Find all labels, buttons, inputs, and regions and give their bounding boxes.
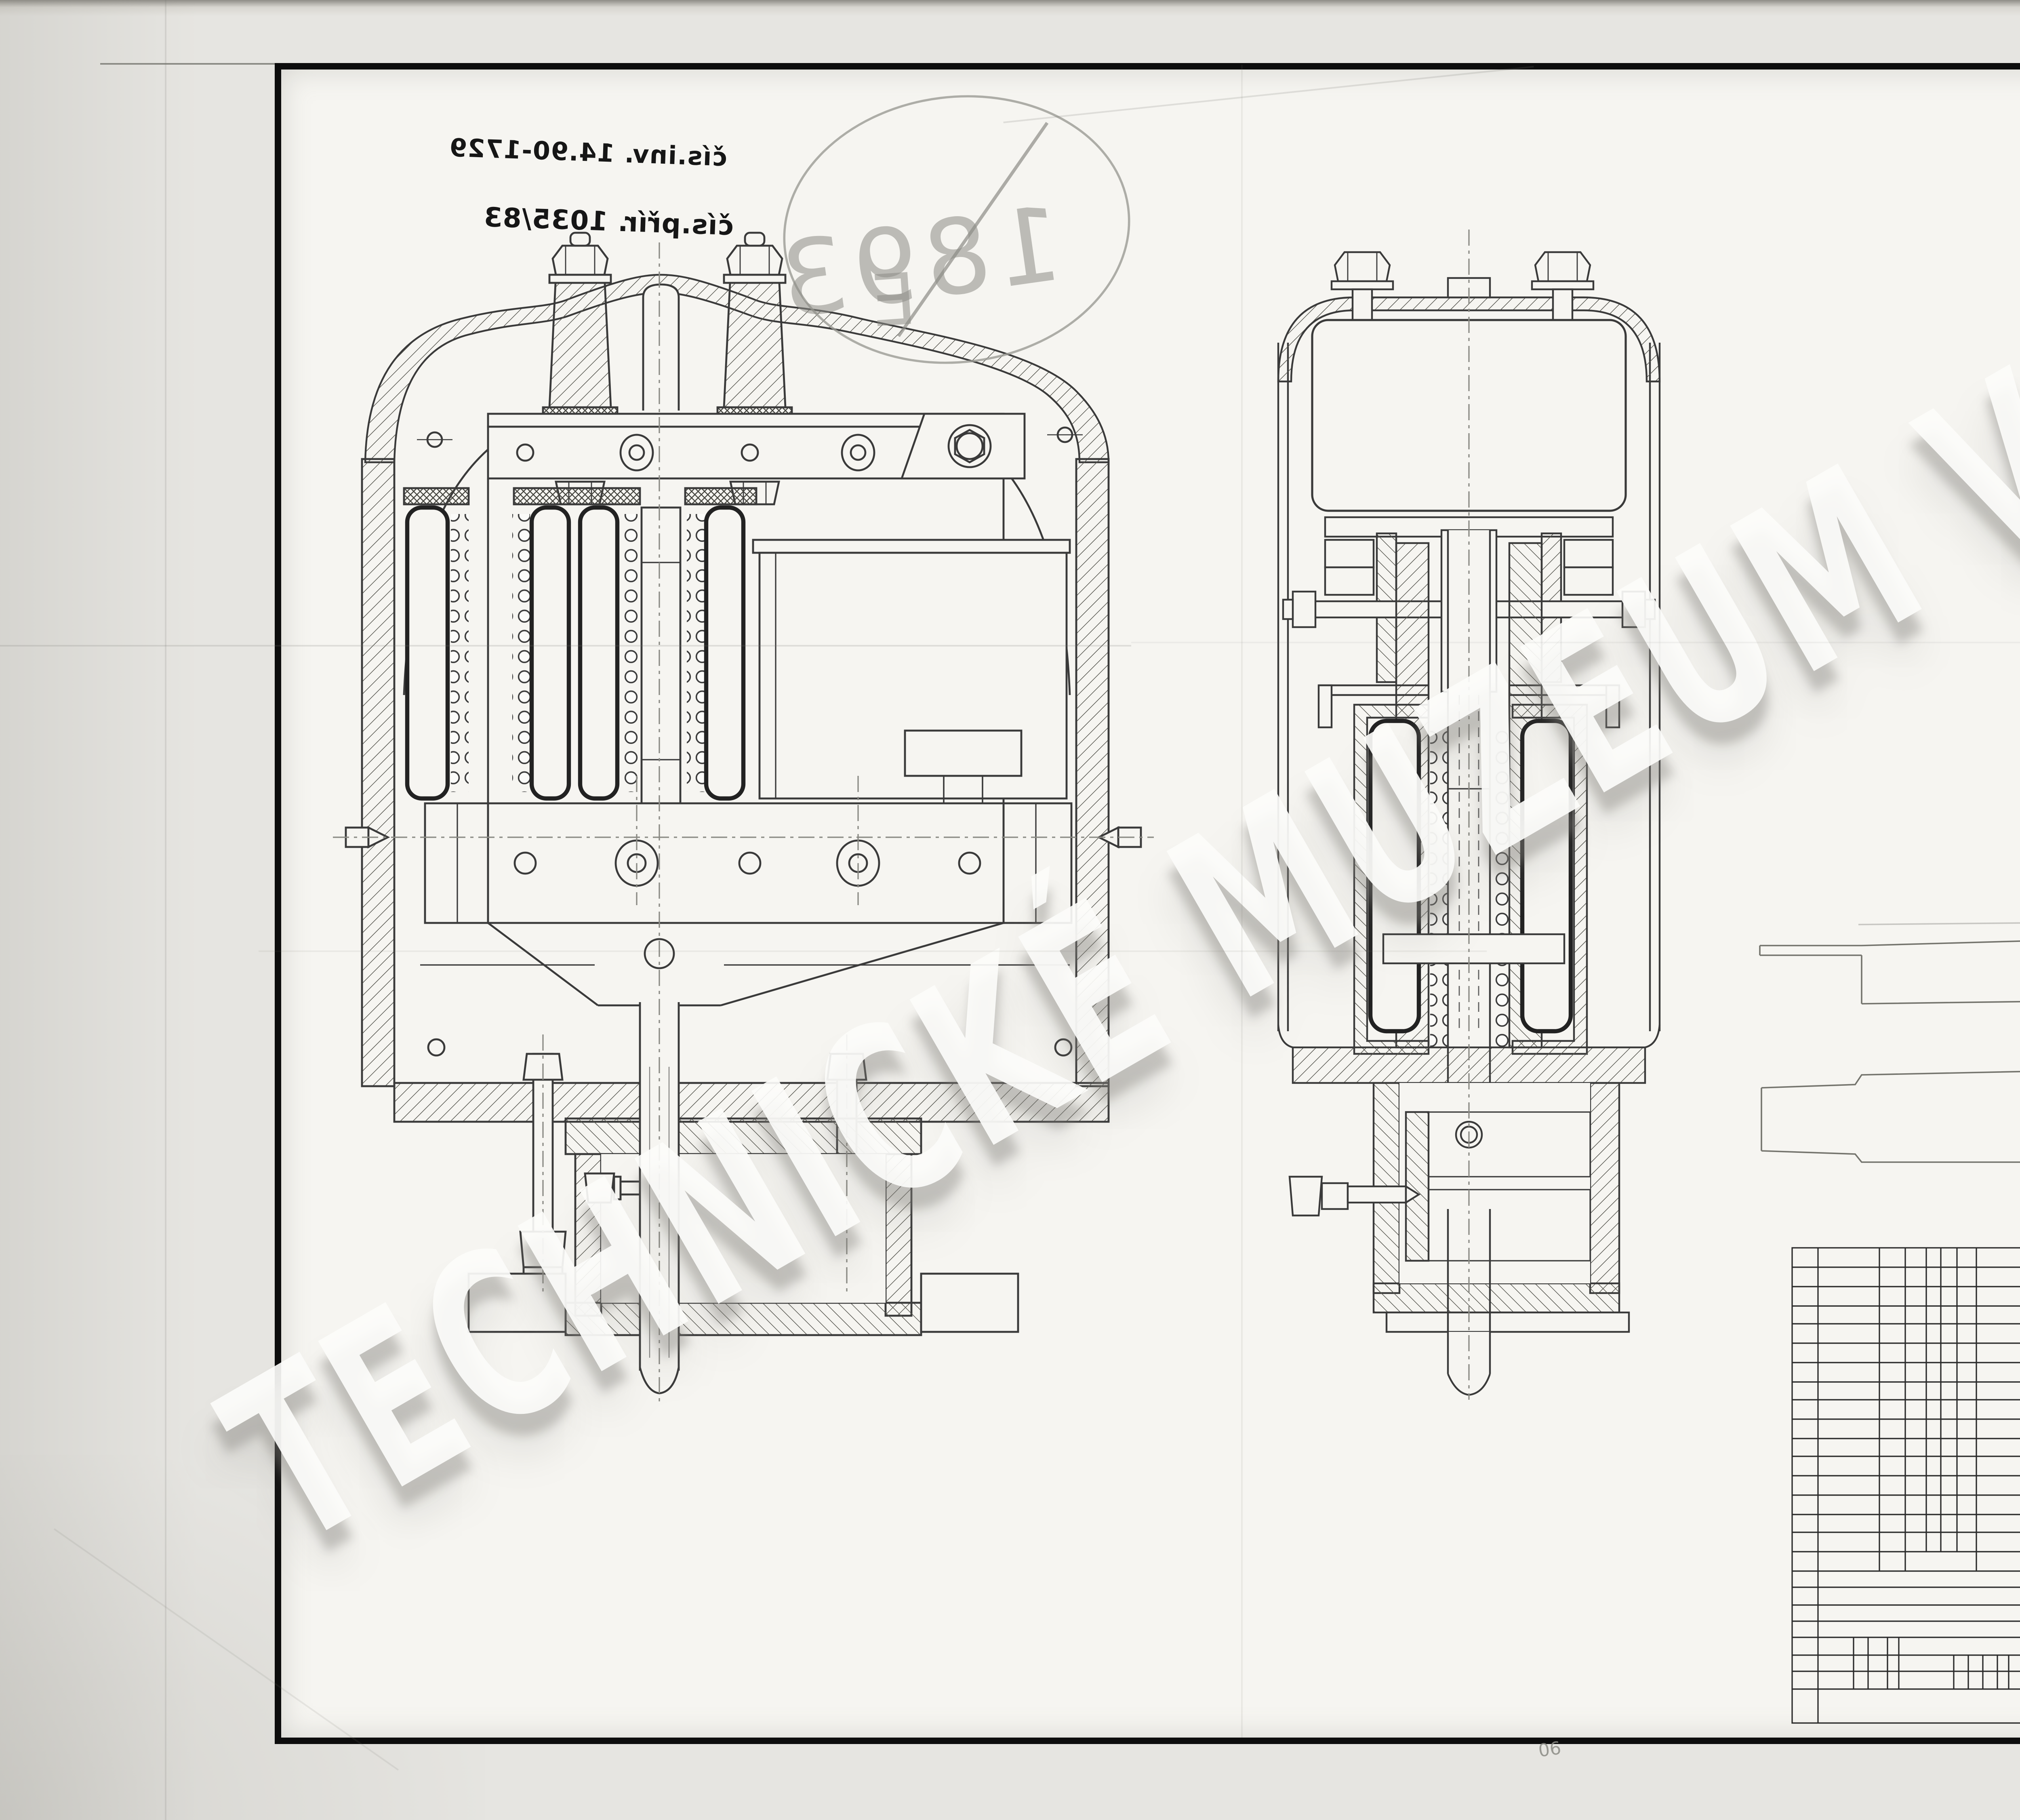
archive-stamp-oval: 1893 E: [767, 77, 1144, 382]
bracket-part-side-view: [1760, 886, 2020, 1004]
title-block-grid: [1792, 1248, 2020, 1731]
scan-stage: 1893 E čís.inv. 14.90-1729 čís.přír. 103…: [0, 0, 2020, 1820]
corner-pencil-note: 06: [1537, 1738, 1563, 1761]
sleeve-part-view: [1761, 1070, 2020, 1162]
stamp-number: 1893: [767, 183, 1070, 343]
stamp-suffix: E: [869, 257, 919, 343]
paper-sheet: 1893 E čís.inv. 14.90-1729 čís.přír. 103…: [0, 0, 2020, 1820]
